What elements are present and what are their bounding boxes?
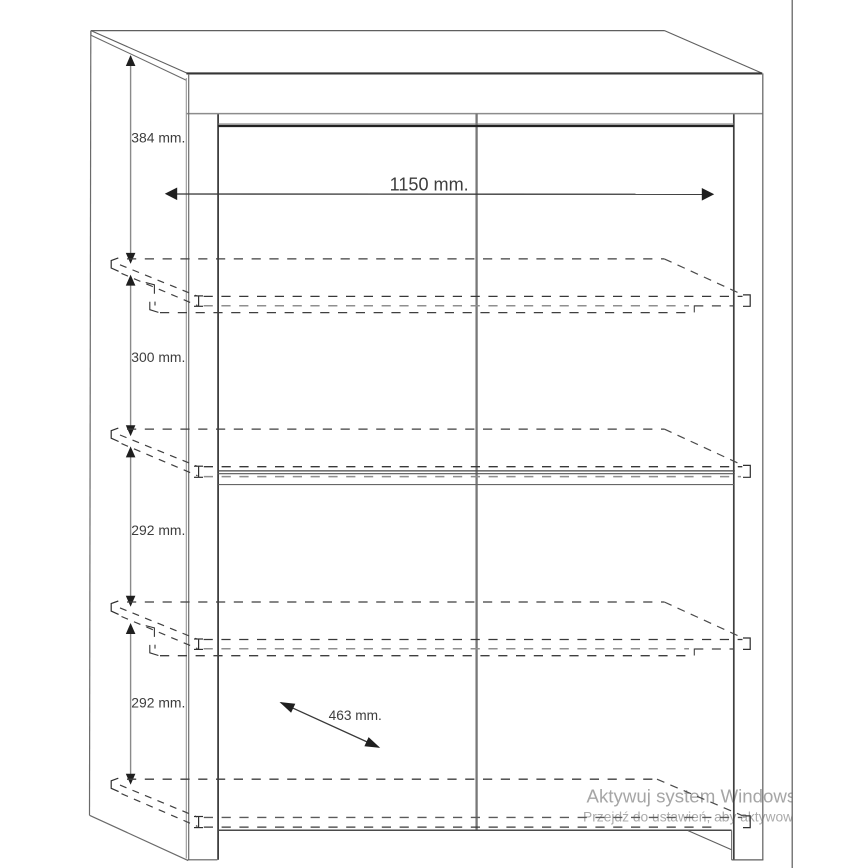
- svg-text:384 mm.: 384 mm.: [131, 130, 185, 146]
- svg-text:463 mm.: 463 mm.: [329, 708, 382, 723]
- svg-text:292 mm.: 292 mm.: [131, 522, 185, 538]
- svg-text:Aktywuj system Windows: Aktywuj system Windows: [587, 786, 797, 807]
- svg-text:1150 mm.: 1150 mm.: [390, 174, 469, 194]
- svg-text:292 mm.: 292 mm.: [131, 695, 185, 711]
- svg-text:300 mm.: 300 mm.: [131, 349, 185, 365]
